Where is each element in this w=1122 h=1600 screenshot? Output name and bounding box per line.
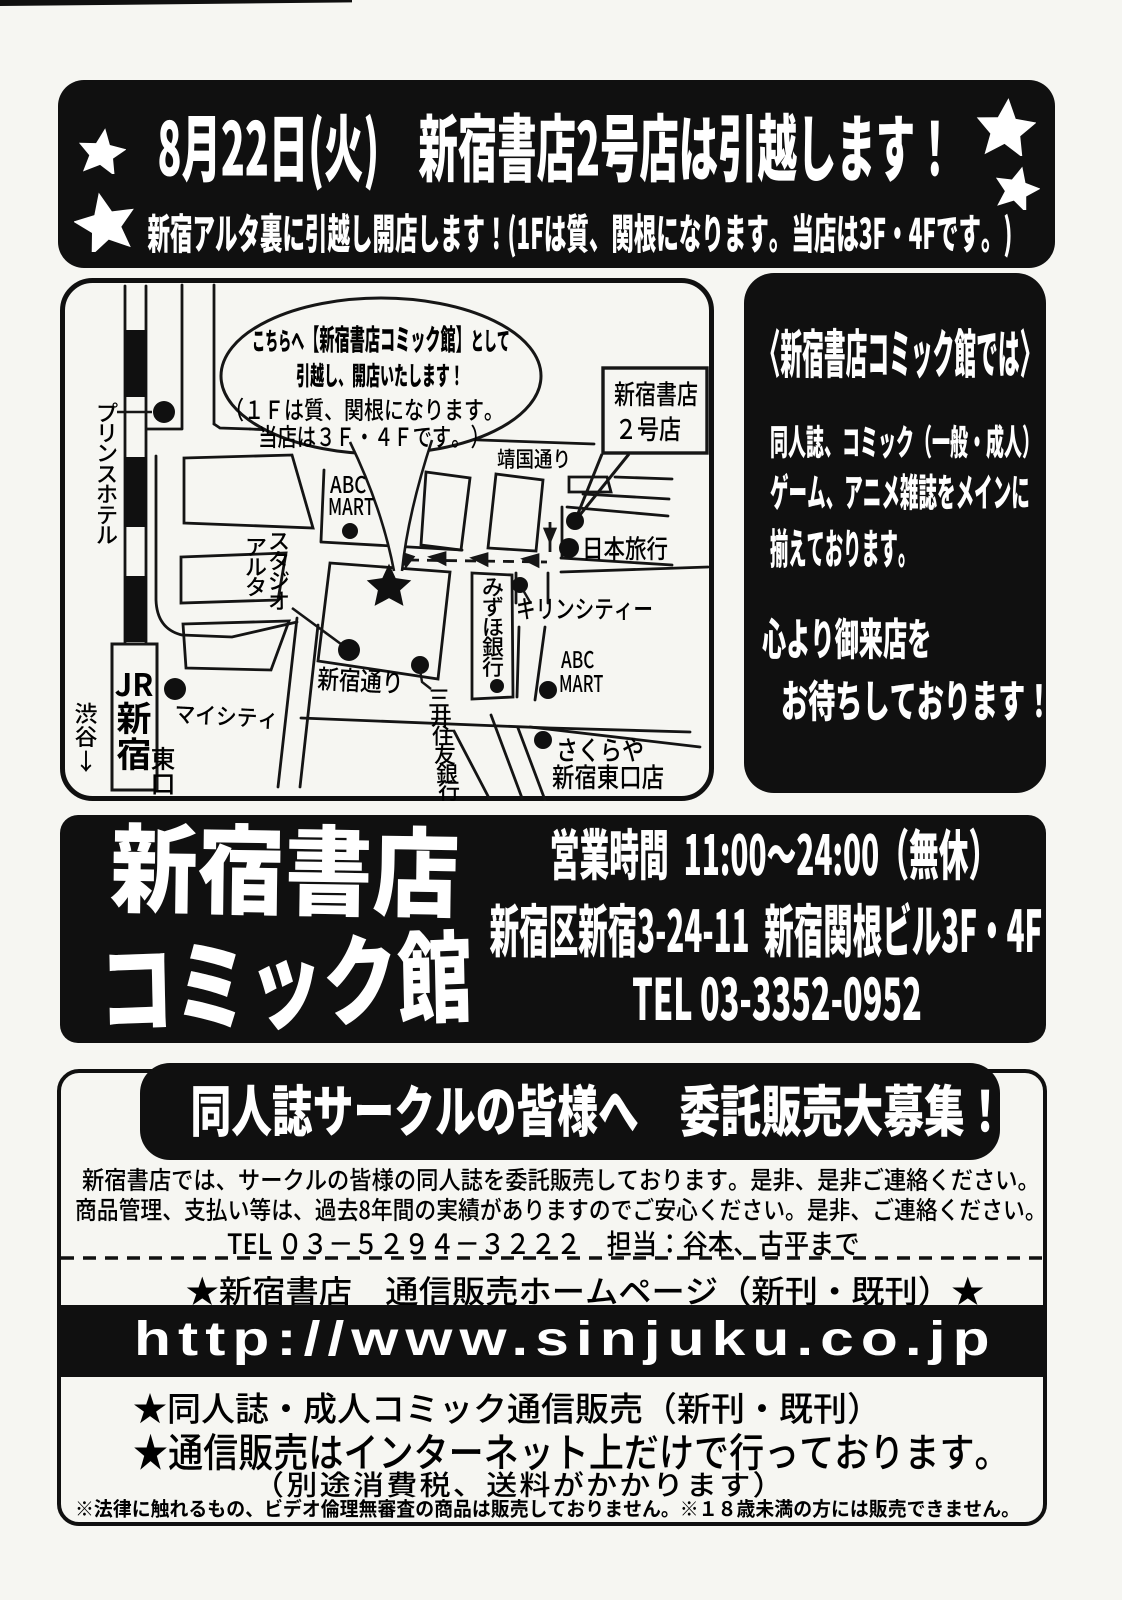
- svg-text:新宿通り: 新宿通り: [317, 658, 405, 701]
- svg-text:↓: ↓: [75, 743, 98, 777]
- svg-text:MART: MART: [328, 489, 374, 522]
- svg-text:こちらへ【新宿書店コミック館】として: こちらへ【新宿書店コミック館】として: [252, 316, 510, 359]
- svg-text:当店は３Ｆ・４Ｆです。）: 当店は３Ｆ・４Ｆです。）: [258, 418, 490, 454]
- svg-text:MART: MART: [559, 665, 603, 698]
- svg-text:新宿書店: 新宿書店: [614, 373, 698, 412]
- svg-text:行: 行: [482, 650, 504, 682]
- svg-text:マイシティ: マイシティ: [174, 697, 279, 735]
- svg-text:引越し、開店いたします！: 引越し、開店いたします！: [296, 356, 464, 393]
- svg-text:靖国通り: 靖国通り: [497, 441, 571, 473]
- svg-text:宿: 宿: [116, 727, 151, 778]
- svg-text:ル: ル: [96, 518, 118, 550]
- svg-text:２号店: ２号店: [615, 408, 681, 447]
- svg-text:新宿東口店: 新宿東口店: [552, 757, 664, 796]
- svg-text:オ: オ: [268, 584, 290, 616]
- svg-text:キリンシティー: キリンシティー: [516, 590, 653, 626]
- svg-text:日本旅行: 日本旅行: [582, 527, 668, 565]
- svg-text:タ: タ: [245, 570, 267, 602]
